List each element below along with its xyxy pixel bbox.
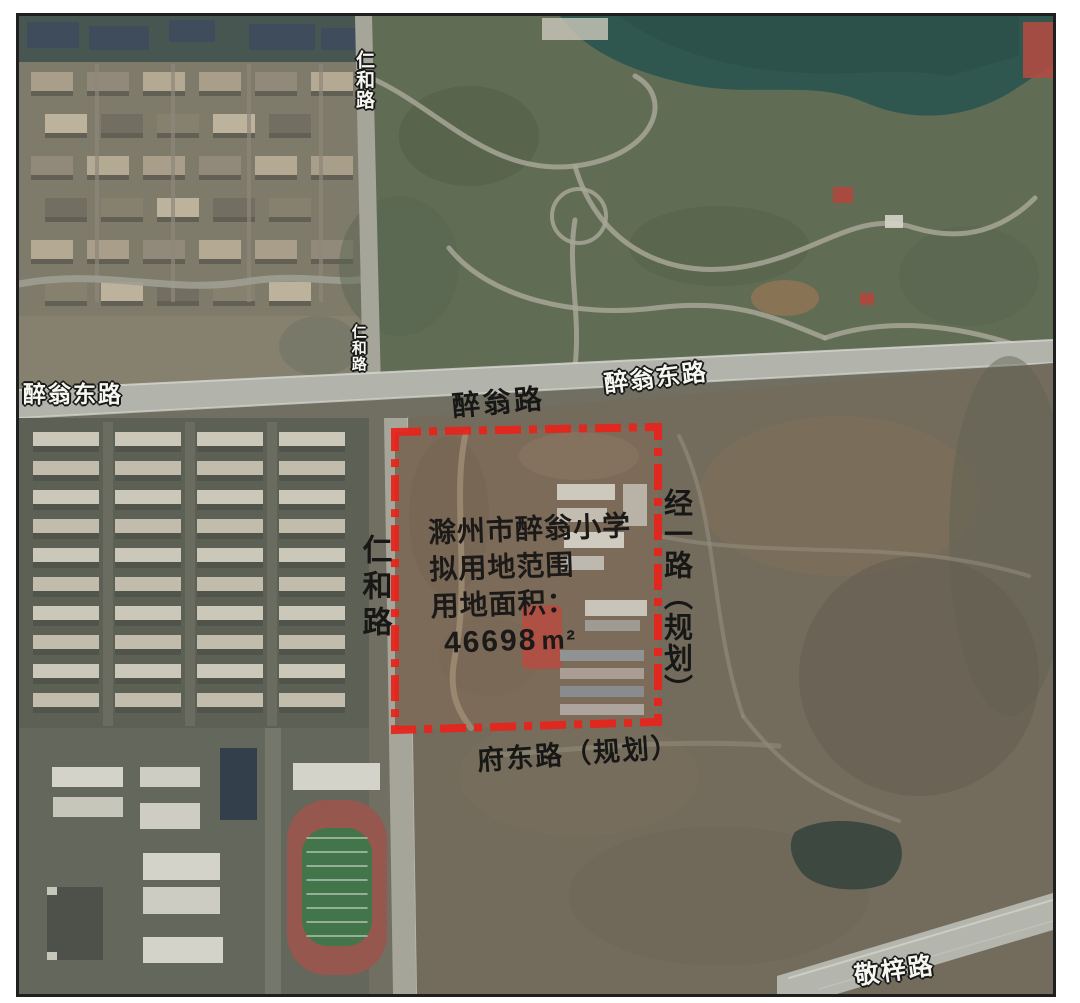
satellite-map: 醉翁东路 醉翁路 醉翁东路 仁和路 仁和路 仁和路 经一路（规划） 府东路（规划…	[16, 13, 1056, 997]
site-area-value: 46698	[443, 623, 538, 659]
site-annotation: 滁州市醉翁小学 拟用地范围 用地面积： 46698m²	[427, 506, 672, 663]
road-label-zuiwengdonglu-west: 醉翁东路	[23, 382, 123, 406]
road-label-renhelu-small-mid: 仁和路	[350, 324, 366, 372]
site-area-unit: m²	[541, 624, 578, 655]
road-label-renhelu-small-top: 仁和路	[353, 50, 373, 110]
road-label-renhelu: 仁和路	[358, 534, 390, 642]
satellite-imagery	[19, 16, 1053, 994]
